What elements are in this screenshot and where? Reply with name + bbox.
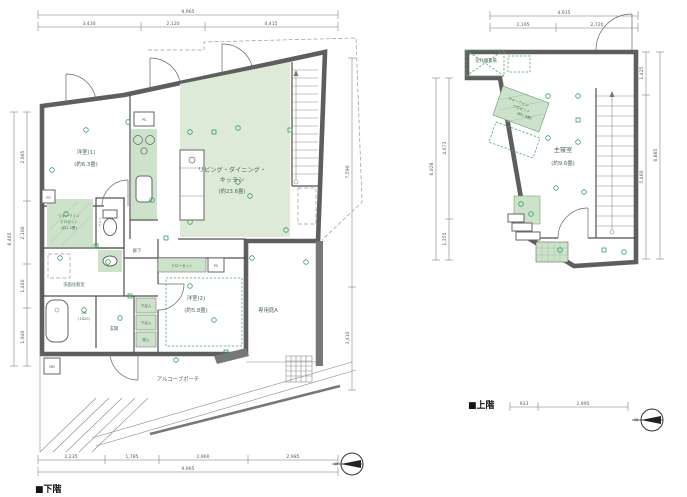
room-label: (約6.3畳) <box>74 160 98 168</box>
room-label: クロゼット <box>60 219 78 224</box>
room-label: (約5.8畳) <box>184 306 208 314</box>
room-label: トイレ <box>98 217 102 228</box>
dim-label: 2,120 <box>166 21 179 27</box>
dim-label: 6,885 <box>653 148 659 161</box>
room-label-hallway: 廊下 <box>133 247 142 254</box>
dim-label: 1,940 <box>20 330 26 343</box>
room-label: クローゼット <box>171 263 193 268</box>
room-label: 専用庭A <box>258 306 278 314</box>
porch-area: MB アルコーブポーチ <box>40 348 356 452</box>
dim-label: 9,965 <box>181 466 194 472</box>
dim-label: 2,720 <box>590 22 603 28</box>
lower-dim-left: 8,465 2,965 2,100 1,460 1,940 <box>7 112 31 366</box>
floorplan-drawing: 9,965 3,430 2,120 4,415 8,465 2,965 2,10… <box>0 0 687 497</box>
dim-label: 4,915 <box>557 10 570 16</box>
cabinet-label: 物入 <box>142 337 150 342</box>
dim-label: 1,785 <box>125 454 138 460</box>
upper-dim-bottom: 933 2,995 ■上階 <box>468 399 628 411</box>
dim-label: 7,590 <box>345 165 351 178</box>
dim-label: 2,965 <box>20 150 26 163</box>
lower-dim-bottom: 2,235 1,785 2,960 2,985 9,965 ■下階 <box>35 454 338 495</box>
dim-label: 4,673 <box>442 141 448 154</box>
room-label: (約9.6畳) <box>551 159 575 167</box>
upper-dim-top: 4,915 2,195 2,720 <box>490 10 638 32</box>
upper-dim-left: 6,028 4,673 1,355 <box>429 78 453 260</box>
room-label: ウォークイン <box>58 213 80 218</box>
room-label: 玄関 <box>110 325 119 332</box>
upper-balcony-door <box>596 14 632 50</box>
shoe-cabinets: 下足入 下足入 物入 <box>136 298 156 347</box>
dim-label: 1,355 <box>442 232 448 245</box>
upper-floor-plan: 4,915 2,195 2,720 6,028 4,673 1,355 1,42… <box>429 10 664 431</box>
kitchen-counter <box>180 150 204 220</box>
dim-label: 2,195 <box>516 22 529 28</box>
dim-label: 2,100 <box>20 226 26 239</box>
compass-n-label: N <box>333 462 339 465</box>
dim-label: 4,415 <box>264 21 277 27</box>
upper-outer-wall <box>467 52 636 266</box>
dim-label: 2,995 <box>576 401 589 407</box>
dim-label: 1,460 <box>20 279 26 292</box>
lower-dim-top: 9,965 3,430 2,120 4,415 <box>38 9 338 31</box>
floorplan-sheet: 9,965 3,430 2,120 4,415 8,465 2,965 2,10… <box>0 0 687 497</box>
dim-label: 2,960 <box>196 454 209 460</box>
dim-label: 6,028 <box>429 162 435 175</box>
dim-label: 2,235 <box>64 454 77 460</box>
room-label: リビング・ダイニング・ <box>198 166 266 174</box>
drain-grate <box>286 356 312 382</box>
compass-icon: N <box>332 453 363 475</box>
compass-n-label: N <box>633 418 639 421</box>
room-wic: ウォークイン クロゼット (約1.2畳) <box>47 199 93 247</box>
dim-label: 933 <box>520 401 529 407</box>
room-label: 洗面化粧室 <box>63 281 85 288</box>
upper-dim-right: 1,425 5,460 6,885 <box>639 52 664 259</box>
cabinet-label: 下足入 <box>141 320 152 325</box>
room-closet: クローゼット PS <box>158 258 224 272</box>
cabinet-label: 下足入 <box>141 303 152 308</box>
room-label: 洋室(2) <box>187 294 205 302</box>
compass-icon-upper: N <box>632 409 663 431</box>
ps-label: PS <box>46 196 51 200</box>
room-label: (約1.2畳) <box>61 225 77 230</box>
dim-label: 9,965 <box>181 9 194 15</box>
room-label: 洋室(1) <box>77 148 95 156</box>
lower-dim-right: 7,590 3,410 <box>345 58 356 390</box>
ps-label: PS <box>142 118 147 122</box>
room-label: (約23.6畳) <box>219 187 246 195</box>
ps-label: PS <box>214 264 219 268</box>
room-label-porch: アルコーブポーチ <box>157 375 200 383</box>
dim-label: 3,430 <box>82 21 95 27</box>
dim-label: 3,410 <box>345 331 351 344</box>
room-label: (1620) <box>78 317 91 321</box>
private-garden: 専用庭A <box>246 241 323 382</box>
dim-label: 8,465 <box>7 232 13 245</box>
room-label: キッチン <box>220 177 245 184</box>
lower-floor-caption: ■下階 <box>35 483 62 495</box>
room-label: 室外機置場 <box>475 57 497 64</box>
dim-label: 2,985 <box>286 454 299 460</box>
dim-label: 5,460 <box>639 170 645 183</box>
mb-label: MB <box>49 365 55 369</box>
room-label: 主寝室 <box>554 146 573 154</box>
upper-floor-caption: ■上階 <box>468 399 495 411</box>
dim-label: 1,425 <box>639 66 645 79</box>
lower-floor-plan: 9,965 3,430 2,120 4,415 8,465 2,965 2,10… <box>7 9 363 495</box>
